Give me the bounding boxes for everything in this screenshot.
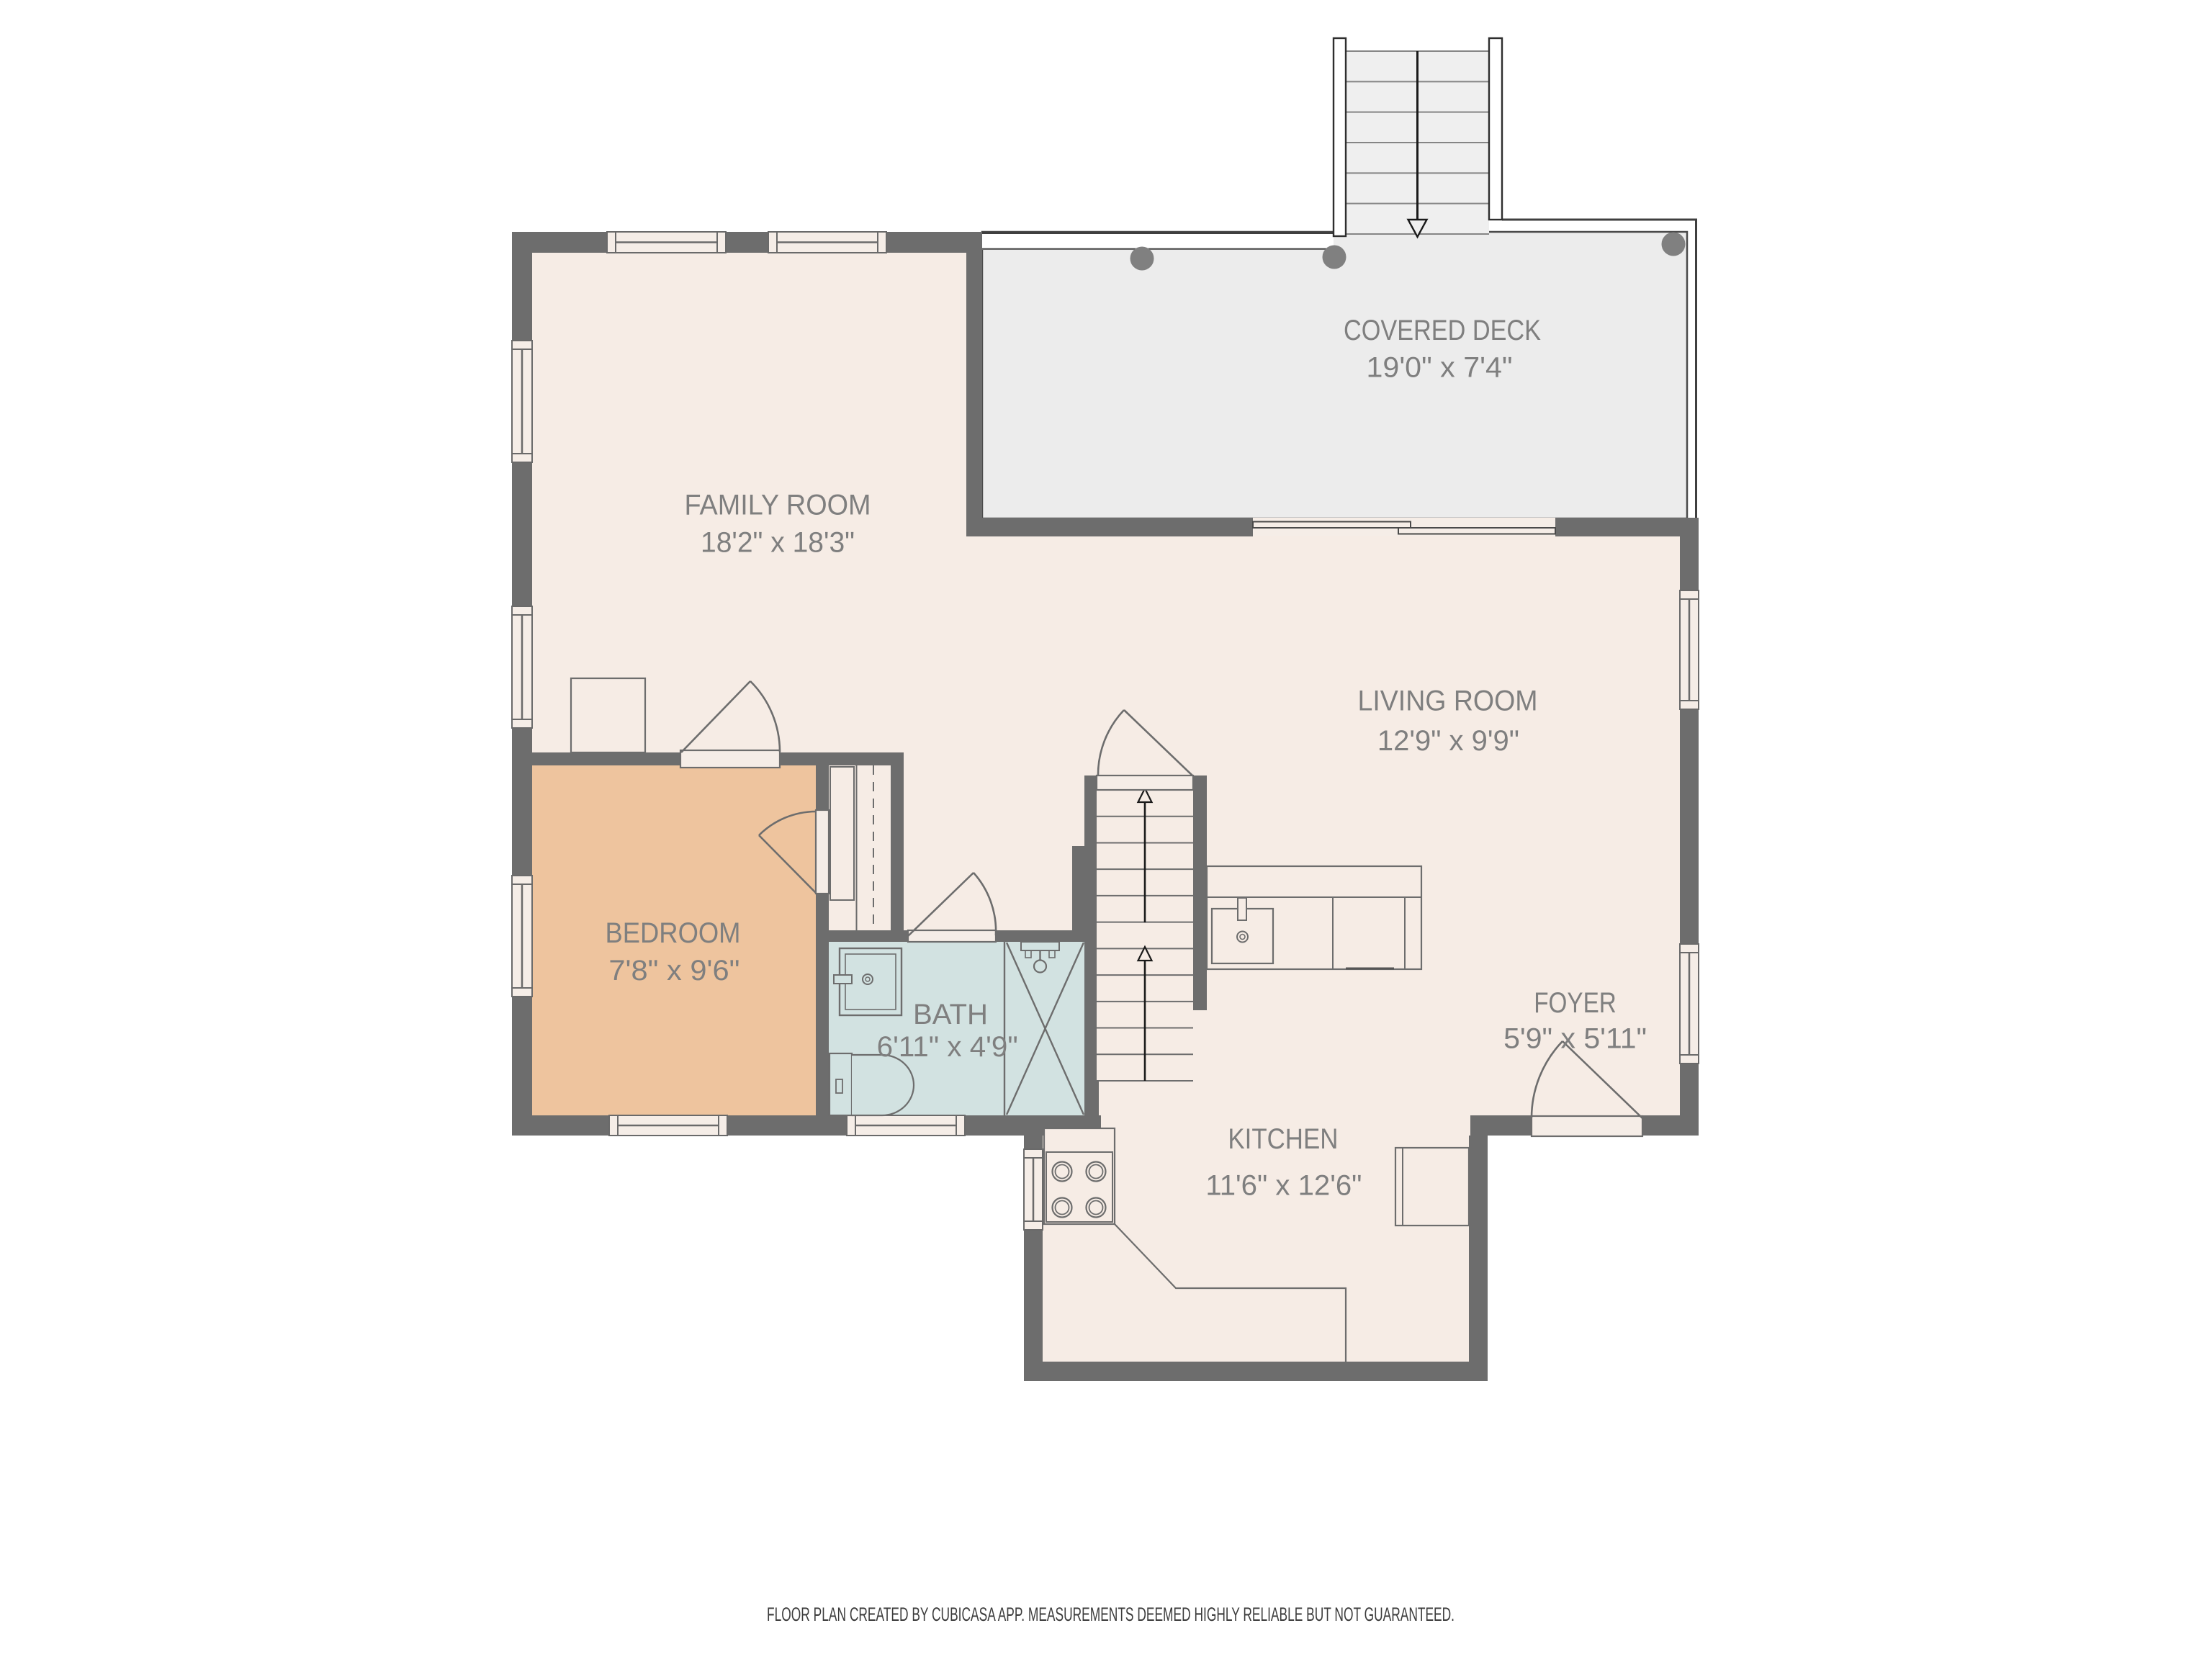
svg-text:19'0" x 7'4": 19'0" x 7'4" <box>1367 352 1513 384</box>
svg-text:11'6" x 12'6": 11'6" x 12'6" <box>1205 1170 1362 1202</box>
svg-text:7'8" x 9'6": 7'8" x 9'6" <box>608 955 739 986</box>
svg-text:12'9" x 9'9": 12'9" x 9'9" <box>1377 725 1519 757</box>
svg-text:KITCHEN: KITCHEN <box>1228 1123 1338 1155</box>
svg-text:BEDROOM: BEDROOM <box>606 917 741 949</box>
svg-text:COVERED DECK: COVERED DECK <box>1344 315 1541 346</box>
svg-text:FLOOR PLAN CREATED BY CUBICASA: FLOOR PLAN CREATED BY CUBICASA APP. MEAS… <box>767 1604 1455 1625</box>
svg-text:LIVING ROOM: LIVING ROOM <box>1358 685 1538 717</box>
svg-text:FAMILY ROOM: FAMILY ROOM <box>685 490 871 521</box>
svg-text:BATH: BATH <box>913 999 988 1030</box>
svg-text:18'2" x 18'3": 18'2" x 18'3" <box>701 527 855 559</box>
svg-text:FOYER: FOYER <box>1534 987 1617 1019</box>
svg-text:5'9" x 5'11": 5'9" x 5'11" <box>1503 1023 1647 1055</box>
svg-text:6'11" x 4'9": 6'11" x 4'9" <box>877 1031 1018 1063</box>
